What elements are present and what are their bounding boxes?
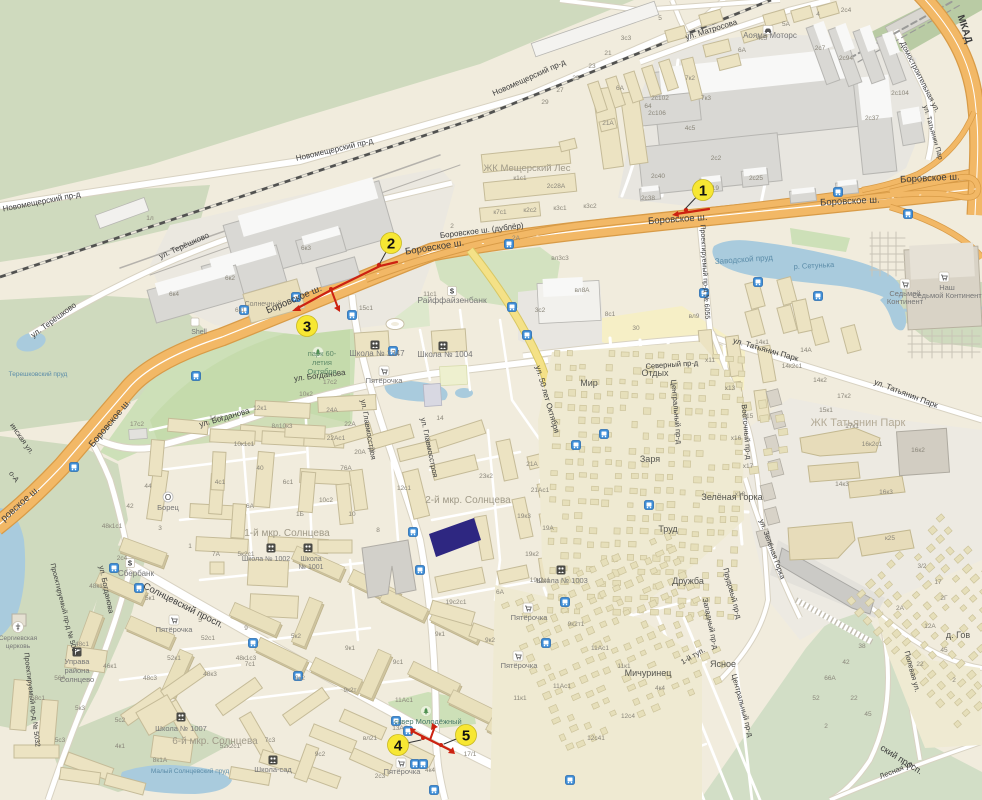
svg-text:2с2: 2с2 (711, 155, 722, 162)
svg-text:4с5: 4с5 (757, 35, 768, 42)
svg-text:Солнечный: Солнечный (245, 300, 282, 308)
svg-text:к2с2: к2с2 (523, 207, 537, 214)
svg-text:22: 22 (916, 661, 924, 668)
svg-text:5: 5 (198, 617, 202, 624)
svg-text:9с1: 9с1 (393, 659, 404, 666)
svg-text:56А: 56А (54, 675, 66, 682)
svg-text:6-й мкр. Солнцева: 6-й мкр. Солнцева (172, 736, 258, 747)
svg-text:2с38: 2с38 (641, 195, 655, 202)
svg-text:6к2: 6к2 (225, 275, 235, 282)
svg-text:Сергиевская: Сергиевская (0, 635, 38, 642)
svg-text:15к1: 15к1 (819, 407, 833, 414)
svg-text:Ясное: Ясное (710, 659, 736, 669)
svg-text:2с25: 2с25 (749, 175, 763, 182)
svg-text:17к1: 17к1 (845, 423, 859, 430)
svg-text:Управа: Управа (65, 657, 91, 666)
svg-text:7к3: 7к3 (701, 95, 711, 102)
svg-text:42: 42 (842, 659, 850, 666)
svg-text:6А: 6А (738, 47, 747, 54)
svg-text:5к2: 5к2 (291, 633, 301, 640)
svg-text:парк 60-: парк 60- (308, 349, 337, 358)
svg-text:Сбербанк: Сбербанк (118, 569, 154, 578)
svg-text:3: 3 (303, 319, 311, 336)
svg-text:76А: 76А (340, 465, 352, 472)
svg-text:Дружба: Дружба (672, 576, 704, 586)
svg-text:Пятёрочка: Пятёрочка (366, 376, 404, 385)
svg-text:22: 22 (850, 695, 858, 702)
svg-text:5с2: 5с2 (115, 717, 126, 724)
svg-text:9: 9 (244, 625, 248, 632)
svg-text:58с1: 58с1 (31, 695, 45, 702)
svg-text:Пятёрочка: Пятёрочка (511, 613, 549, 622)
svg-text:48к1с1: 48к1с1 (102, 523, 123, 530)
svg-text:12с41: 12с41 (587, 735, 605, 742)
svg-text:х18: х18 (735, 491, 746, 498)
svg-text:10с2: 10с2 (319, 497, 333, 504)
svg-text:Мир: Мир (580, 378, 598, 388)
svg-text:Shell: Shell (191, 329, 207, 336)
svg-text:10: 10 (348, 511, 356, 518)
svg-text:2с106: 2с106 (648, 110, 666, 117)
svg-text:к3с2: к3с2 (583, 203, 597, 210)
svg-text:5с3: 5с3 (55, 737, 66, 744)
svg-text:7А: 7А (212, 551, 221, 558)
svg-text:Борец: Борец (157, 503, 179, 512)
svg-text:21А: 21А (526, 461, 538, 468)
svg-text:48к3: 48к3 (203, 671, 217, 678)
svg-text:46к1: 46к1 (103, 663, 117, 670)
svg-text:2А: 2А (512, 235, 521, 242)
svg-text:№ 1001: № 1001 (298, 564, 323, 571)
svg-text:48к1с3: 48к1с3 (236, 655, 257, 662)
svg-text:4: 4 (816, 11, 820, 18)
svg-text:1Б: 1Б (296, 511, 304, 518)
svg-text:2: 2 (952, 677, 956, 684)
svg-text:19к3: 19к3 (517, 513, 531, 520)
svg-text:48с1: 48с1 (75, 641, 89, 648)
svg-text:52: 52 (812, 695, 820, 702)
svg-text:2с3: 2с3 (375, 773, 386, 780)
svg-text:12с1: 12с1 (397, 485, 411, 492)
svg-text:Школа № 1007: Школа № 1007 (155, 724, 207, 733)
svg-text:Школа № 1347: Школа № 1347 (349, 349, 405, 358)
svg-text:2с104: 2с104 (891, 90, 909, 97)
svg-text:Пятёрочка: Пятёрочка (384, 767, 422, 776)
svg-text:12к1: 12к1 (253, 405, 267, 412)
svg-text:летия: летия (312, 358, 332, 367)
svg-text:Континент: Континент (887, 297, 924, 306)
svg-text:2Г: 2Г (940, 595, 948, 602)
svg-text:O: O (165, 493, 171, 502)
svg-text:8к1А: 8к1А (153, 757, 168, 764)
svg-text:9к2т: 9к2т (343, 687, 356, 694)
svg-text:9к2т1: 9к2т1 (568, 621, 585, 628)
svg-text:16к3: 16к3 (879, 489, 893, 496)
svg-text:2с40: 2с40 (651, 173, 665, 180)
svg-text:д. Гов: д. Гов (946, 630, 971, 640)
svg-text:6к1: 6к1 (235, 307, 245, 314)
svg-text:11к1: 11к1 (513, 695, 527, 702)
svg-text:14к2с1: 14к2с1 (782, 363, 803, 370)
svg-text:24А: 24А (326, 407, 338, 414)
svg-text:2с7: 2с7 (815, 45, 826, 52)
svg-text:3с2: 3с2 (535, 307, 546, 314)
svg-text:9к1: 9к1 (345, 645, 355, 652)
svg-text:к25: к25 (885, 535, 895, 542)
svg-text:25: 25 (572, 75, 580, 82)
svg-text:Школа-сад: Школа-сад (254, 765, 292, 774)
svg-text:52к1: 52к1 (167, 655, 181, 662)
svg-text:вл8А: вл8А (574, 287, 590, 294)
svg-text:48к1: 48к1 (89, 583, 103, 590)
svg-text:2с102: 2с102 (651, 95, 669, 102)
svg-text:14к3: 14к3 (835, 481, 849, 488)
svg-text:4: 4 (394, 738, 403, 755)
svg-text:9к1: 9к1 (435, 631, 445, 638)
svg-text:48с3: 48с3 (143, 675, 157, 682)
svg-text:17с2: 17с2 (323, 379, 337, 386)
svg-text:х15: х15 (743, 413, 754, 420)
svg-text:1-й мкр. Солнцева: 1-й мкр. Солнцева (244, 528, 330, 539)
svg-text:4к1: 4к1 (115, 743, 125, 750)
svg-text:8л10к3: 8л10к3 (271, 423, 292, 430)
svg-text:66А: 66А (824, 675, 836, 682)
svg-text:вл21: вл21 (363, 735, 378, 742)
svg-text:40: 40 (256, 465, 264, 472)
svg-text:Отдых: Отдых (641, 368, 669, 378)
svg-text:1л: 1л (146, 215, 154, 222)
svg-text:6к3: 6к3 (301, 245, 311, 252)
svg-text:Пятёрочка: Пятёрочка (156, 625, 194, 634)
svg-text:14к1: 14к1 (755, 339, 769, 346)
svg-text:5А: 5А (782, 21, 791, 28)
svg-text:45: 45 (940, 647, 948, 654)
svg-text:вл9: вл9 (689, 313, 700, 320)
svg-text:5: 5 (658, 15, 662, 22)
svg-text:1: 1 (188, 543, 192, 550)
svg-text:6с1: 6с1 (283, 479, 294, 486)
svg-text:19к2: 19к2 (525, 551, 539, 558)
svg-text:19А: 19А (542, 525, 554, 532)
svg-text:х16: х16 (731, 435, 742, 442)
svg-text:2: 2 (387, 236, 395, 253)
svg-text:1: 1 (699, 183, 707, 200)
svg-text:х13: х13 (725, 385, 736, 392)
svg-text:12с4: 12с4 (621, 713, 635, 720)
svg-text:Мичуринец: Мичуринец (625, 668, 672, 678)
svg-text:16к2: 16к2 (911, 447, 925, 454)
svg-text:21: 21 (604, 50, 612, 57)
svg-text:42: 42 (126, 503, 134, 510)
svg-text:11Ас1: 11Ас1 (591, 645, 609, 652)
svg-text:2: 2 (450, 223, 454, 230)
svg-text:к3с1: к3с1 (553, 205, 567, 212)
svg-text:15с1: 15с1 (359, 305, 373, 312)
svg-text:5к1: 5к1 (145, 595, 155, 602)
svg-text:21Ас1: 21Ас1 (531, 487, 550, 494)
svg-text:3: 3 (158, 525, 162, 532)
svg-text:х11: х11 (705, 357, 715, 364)
svg-text:29: 29 (541, 99, 549, 106)
svg-text:к7с1: к7с1 (493, 209, 507, 216)
svg-text:20А: 20А (354, 449, 366, 456)
svg-text:5к2с1: 5к2с1 (238, 551, 255, 558)
svg-text:11к1: 11к1 (617, 663, 631, 670)
svg-text:2с37: 2с37 (865, 115, 879, 122)
svg-text:12: 12 (368, 447, 376, 454)
svg-text:7с1: 7с1 (245, 661, 256, 668)
svg-text:11Ас1: 11Ас1 (395, 697, 413, 704)
svg-text:9к2: 9к2 (295, 675, 305, 682)
svg-text:17с2: 17с2 (130, 421, 144, 428)
svg-text:Аояма Моторс: Аояма Моторс (743, 31, 797, 40)
svg-text:5к3: 5к3 (75, 705, 85, 712)
svg-text:Малый Солнцевский пруд: Малый Солнцевский пруд (151, 767, 229, 775)
svg-text:11Ас1: 11Ас1 (553, 683, 571, 690)
svg-text:Зелёная Горка: Зелёная Горка (701, 492, 762, 502)
svg-text:30: 30 (632, 325, 640, 332)
svg-text:19к2с1: 19к2с1 (530, 577, 551, 584)
svg-text:Октября: Октября (307, 367, 336, 376)
svg-text:Школа: Школа (300, 556, 321, 563)
svg-text:6А: 6А (496, 589, 505, 596)
svg-text:к1с1: к1с1 (513, 175, 527, 182)
svg-text:14к2: 14к2 (813, 377, 827, 384)
svg-text:23: 23 (588, 63, 596, 70)
svg-text:6А: 6А (246, 503, 255, 510)
svg-text:2А: 2А (896, 605, 905, 612)
svg-text:27: 27 (556, 87, 564, 94)
svg-text:11с1: 11с1 (423, 291, 437, 298)
svg-text:9с2: 9с2 (315, 751, 326, 758)
svg-text:52с1: 52с1 (201, 635, 215, 642)
svg-text:45: 45 (864, 711, 872, 718)
svg-text:14А: 14А (800, 347, 812, 354)
svg-text:6А: 6А (616, 85, 625, 92)
svg-text:3/2: 3/2 (917, 563, 926, 570)
svg-text:21А: 21А (602, 120, 614, 127)
svg-text:14: 14 (436, 415, 444, 422)
svg-text:12А: 12А (924, 623, 936, 630)
svg-text:44: 44 (144, 483, 152, 490)
svg-text:7с3: 7с3 (265, 737, 276, 744)
svg-text:64: 64 (644, 103, 652, 110)
svg-text:Пятёрочка: Пятёрочка (501, 661, 539, 670)
svg-text:4к4: 4к4 (425, 767, 435, 774)
svg-text:7к2: 7к2 (685, 75, 695, 82)
svg-text:8с1: 8с1 (605, 311, 616, 318)
svg-text:сквер Молодёжный: сквер Молодёжный (394, 717, 461, 726)
svg-text:Заря: Заря (640, 454, 660, 464)
svg-text:38: 38 (858, 643, 866, 650)
svg-text:ЖК Мещерский Лес: ЖК Мещерский Лес (484, 163, 571, 174)
svg-text:8: 8 (376, 527, 380, 534)
svg-text:17к2: 17к2 (837, 393, 851, 400)
svg-text:церковь: церковь (6, 643, 31, 650)
svg-text:3с3: 3с3 (621, 35, 632, 42)
svg-text:23к2: 23к2 (479, 473, 493, 480)
svg-text:х17: х17 (743, 463, 754, 470)
svg-text:2с28А: 2с28А (547, 183, 566, 190)
svg-text:10к2: 10к2 (299, 391, 313, 398)
svg-text:вл3с3: вл3с3 (551, 255, 569, 262)
svg-text:6к4: 6к4 (169, 291, 179, 298)
svg-text:9к2: 9к2 (485, 637, 495, 644)
svg-text:2-й мкр. Солнцева: 2-й мкр. Солнцева (425, 495, 511, 506)
svg-text:14к1: 14к1 (209, 415, 223, 422)
svg-text:22Ас1: 22Ас1 (327, 435, 346, 442)
svg-text:17: 17 (934, 579, 942, 586)
svg-text:2с94: 2с94 (839, 55, 853, 62)
svg-text:16к2с1: 16к2с1 (862, 441, 883, 448)
svg-text:19с2с1: 19с2с1 (446, 599, 467, 606)
svg-text:Терешковский пруд: Терешковский пруд (9, 370, 68, 378)
svg-text:22А: 22А (344, 421, 356, 428)
svg-text:2с4: 2с4 (841, 7, 852, 14)
svg-text:Труд: Труд (658, 524, 678, 534)
svg-text:10к1с1: 10к1с1 (234, 441, 255, 448)
svg-text:4с1: 4с1 (215, 479, 226, 486)
svg-text:17/1: 17/1 (464, 751, 477, 758)
svg-text:2с4: 2с4 (117, 555, 128, 562)
svg-text:2: 2 (824, 723, 828, 730)
svg-text:4к4: 4к4 (655, 685, 665, 692)
svg-text:52к2с1: 52к2с1 (220, 743, 241, 750)
svg-text:района: района (64, 666, 90, 675)
svg-text:5: 5 (462, 728, 470, 745)
svg-text:4с5: 4с5 (685, 125, 696, 132)
svg-text:Школа № 1004: Школа № 1004 (417, 350, 473, 359)
svg-text:13А: 13А (392, 725, 404, 732)
